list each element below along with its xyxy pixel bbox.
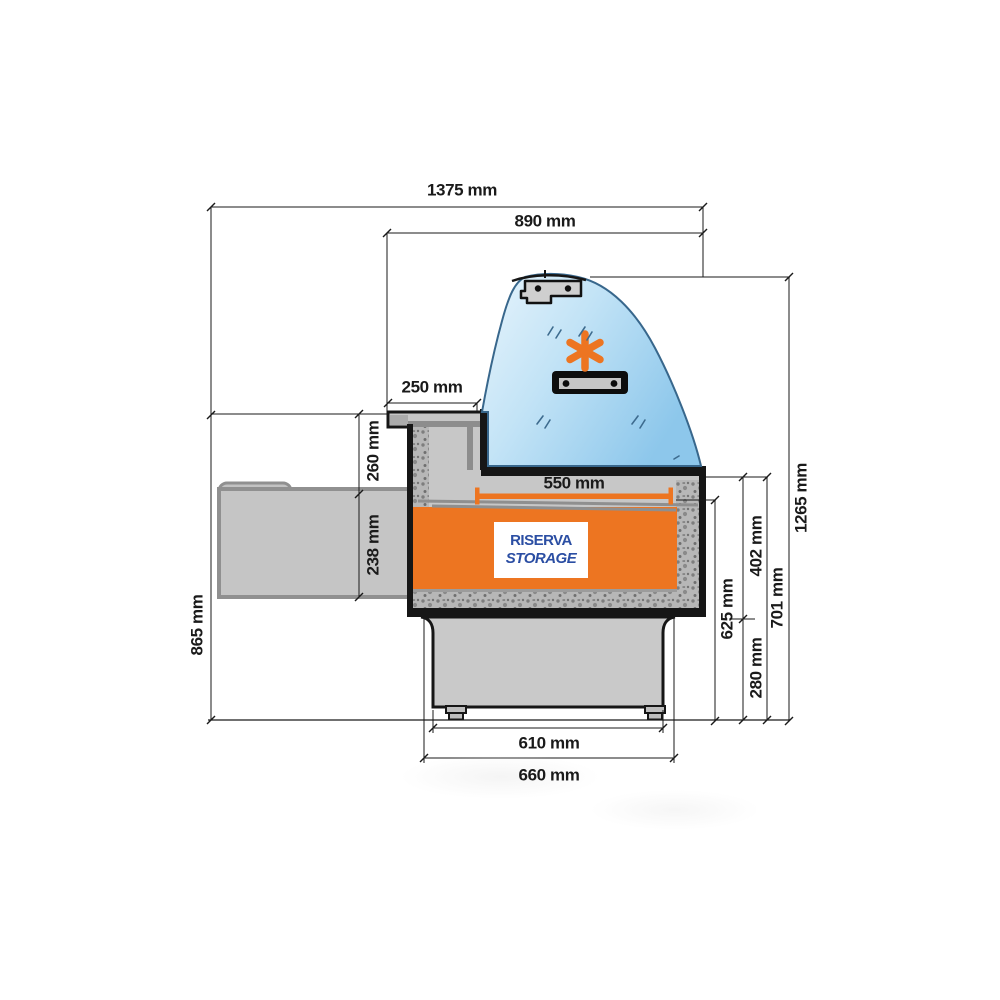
dim-well-floor-label: 625 mm bbox=[719, 579, 736, 640]
base-plinth bbox=[421, 617, 675, 707]
hinge-bolt-2 bbox=[565, 285, 571, 291]
dim-ledge-depth-label: 250 mm bbox=[402, 379, 463, 396]
dim-total-depth-label: 1375 mm bbox=[427, 182, 497, 199]
step-inner-line bbox=[467, 421, 473, 470]
dim-upper-section-label: 260 mm bbox=[365, 421, 382, 482]
storage-label: RISERVA STORAGE bbox=[494, 522, 588, 578]
dim-case-depth-label: 890 mm bbox=[515, 213, 576, 230]
dim-well-depth-label: 550 mm bbox=[544, 475, 605, 492]
dim-overall-height-label: 1265 mm bbox=[793, 463, 810, 533]
dim-case-body-label: 402 mm bbox=[748, 516, 765, 577]
glass-canopy bbox=[482, 274, 701, 466]
insulation-bottom bbox=[413, 591, 699, 608]
lamp-icon bbox=[552, 371, 628, 394]
dim-counter-front-label: 701 mm bbox=[769, 568, 786, 629]
technical-drawing-canvas: 1375 mm 890 mm 250 mm 550 mm 610 mm 660 … bbox=[0, 0, 1000, 1000]
dim-worktop-height-label: 865 mm bbox=[189, 595, 206, 656]
storage-bottom-line bbox=[412, 589, 677, 592]
storage-label-line2: STORAGE bbox=[506, 551, 576, 568]
foot-right bbox=[645, 706, 665, 720]
hinge-bolt-1 bbox=[535, 285, 541, 291]
foot-left bbox=[446, 706, 466, 720]
dim-shelf-section-label: 238 mm bbox=[365, 515, 382, 576]
drawing-graphics bbox=[0, 0, 1000, 1000]
insulation-left bbox=[413, 427, 429, 508]
dim-base-outer-width-label: 660 mm bbox=[519, 767, 580, 784]
insulation-right bbox=[676, 480, 699, 606]
storage-label-line1: RISERVA bbox=[510, 533, 572, 550]
dim-base-section-label: 280 mm bbox=[748, 638, 765, 699]
dim-base-inner-width-label: 610 mm bbox=[519, 735, 580, 752]
front-lip bbox=[390, 415, 408, 425]
